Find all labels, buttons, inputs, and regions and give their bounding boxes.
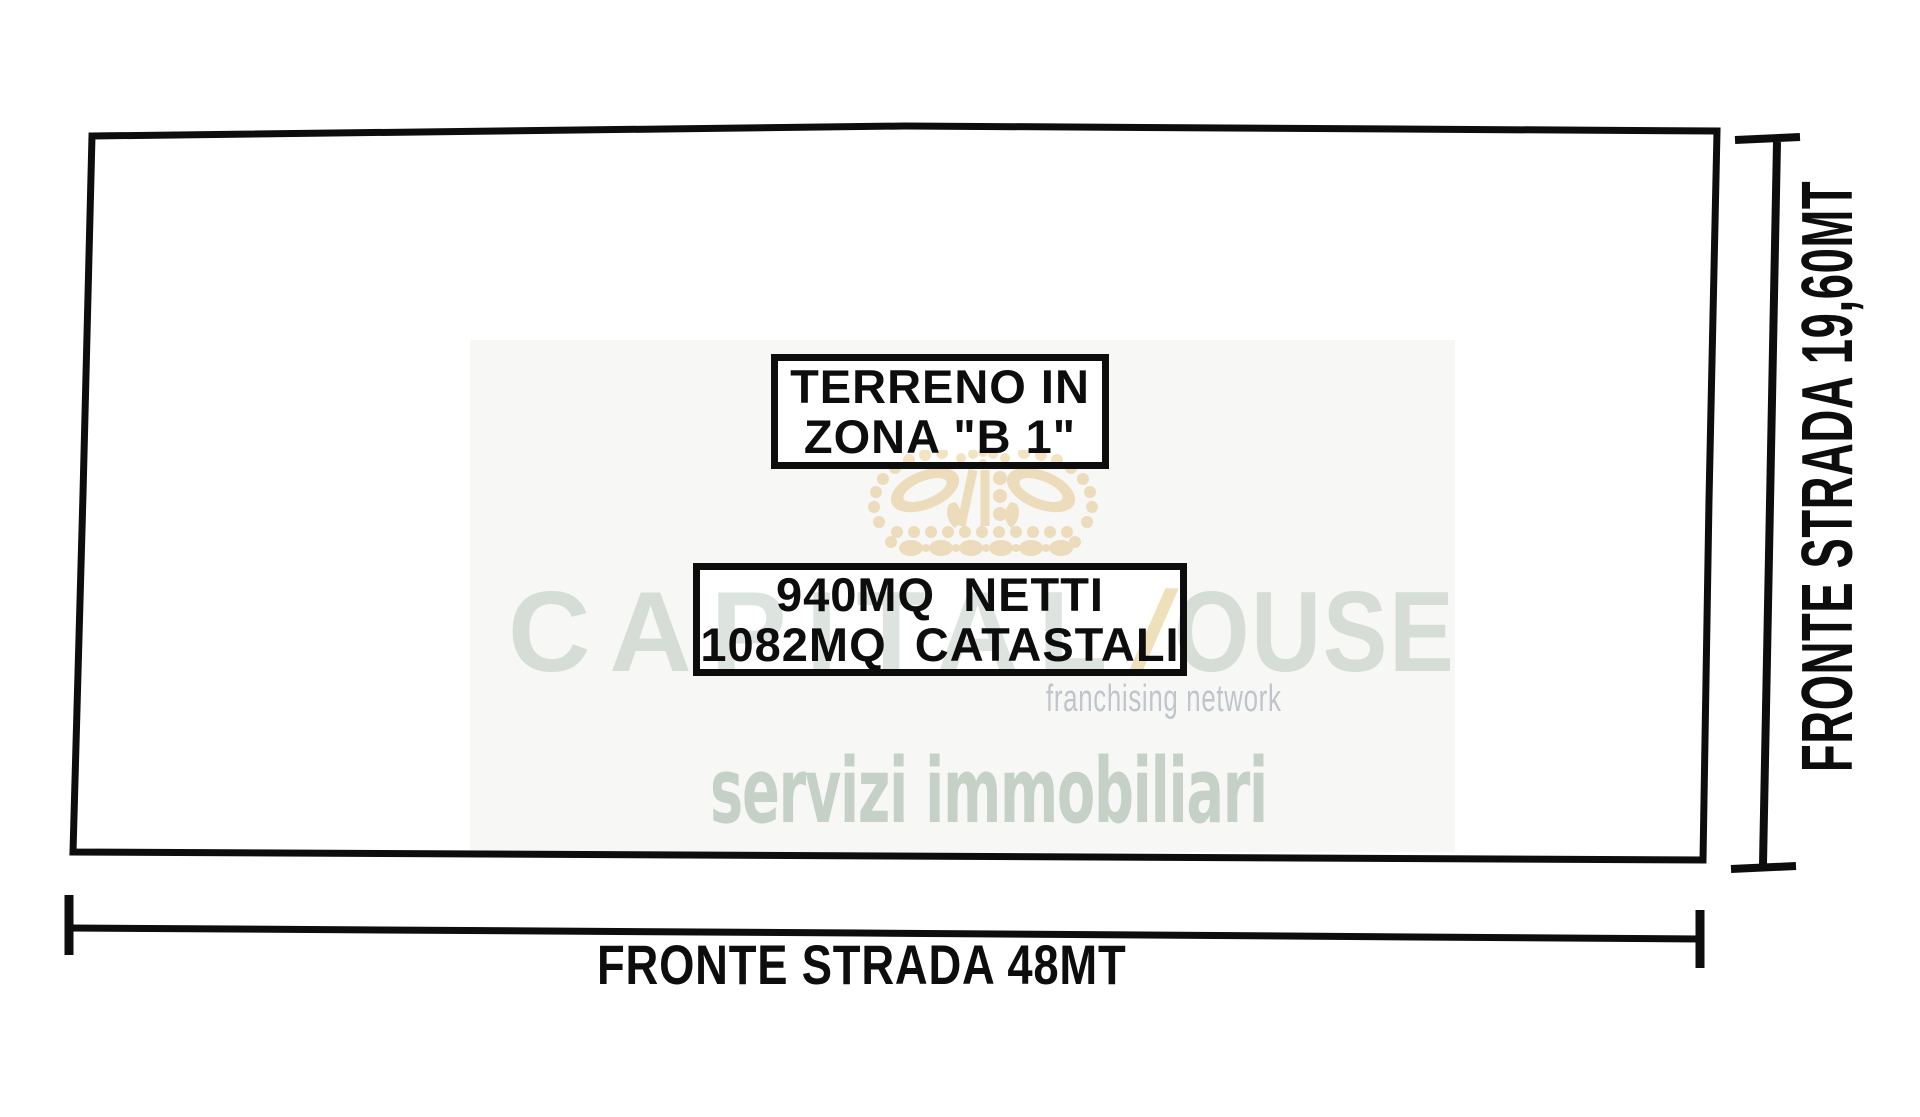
area-label-line1: 940MQ NETTI xyxy=(700,570,1180,620)
area-label-line2: 1082MQ CATASTALI xyxy=(700,620,1180,670)
front-road-right-label: FRONTE STRADA 19,60MT xyxy=(1788,181,1869,772)
area-label-box: 940MQ NETTI 1082MQ CATASTALI xyxy=(693,563,1187,676)
zone-label-box: TERRENO IN ZONA "B 1" xyxy=(771,354,1109,469)
front-road-bottom-label: FRONTE STRADA 48MT xyxy=(597,937,1127,993)
zone-label-line1: TERRENO IN xyxy=(778,362,1102,412)
zone-label-line2: ZONA "B 1" xyxy=(778,412,1102,462)
land-plot-diagram: TERRENO IN ZONA "B 1" 940MQ NETTI 1082MQ… xyxy=(0,0,1920,1117)
plot-outline xyxy=(73,126,1717,860)
